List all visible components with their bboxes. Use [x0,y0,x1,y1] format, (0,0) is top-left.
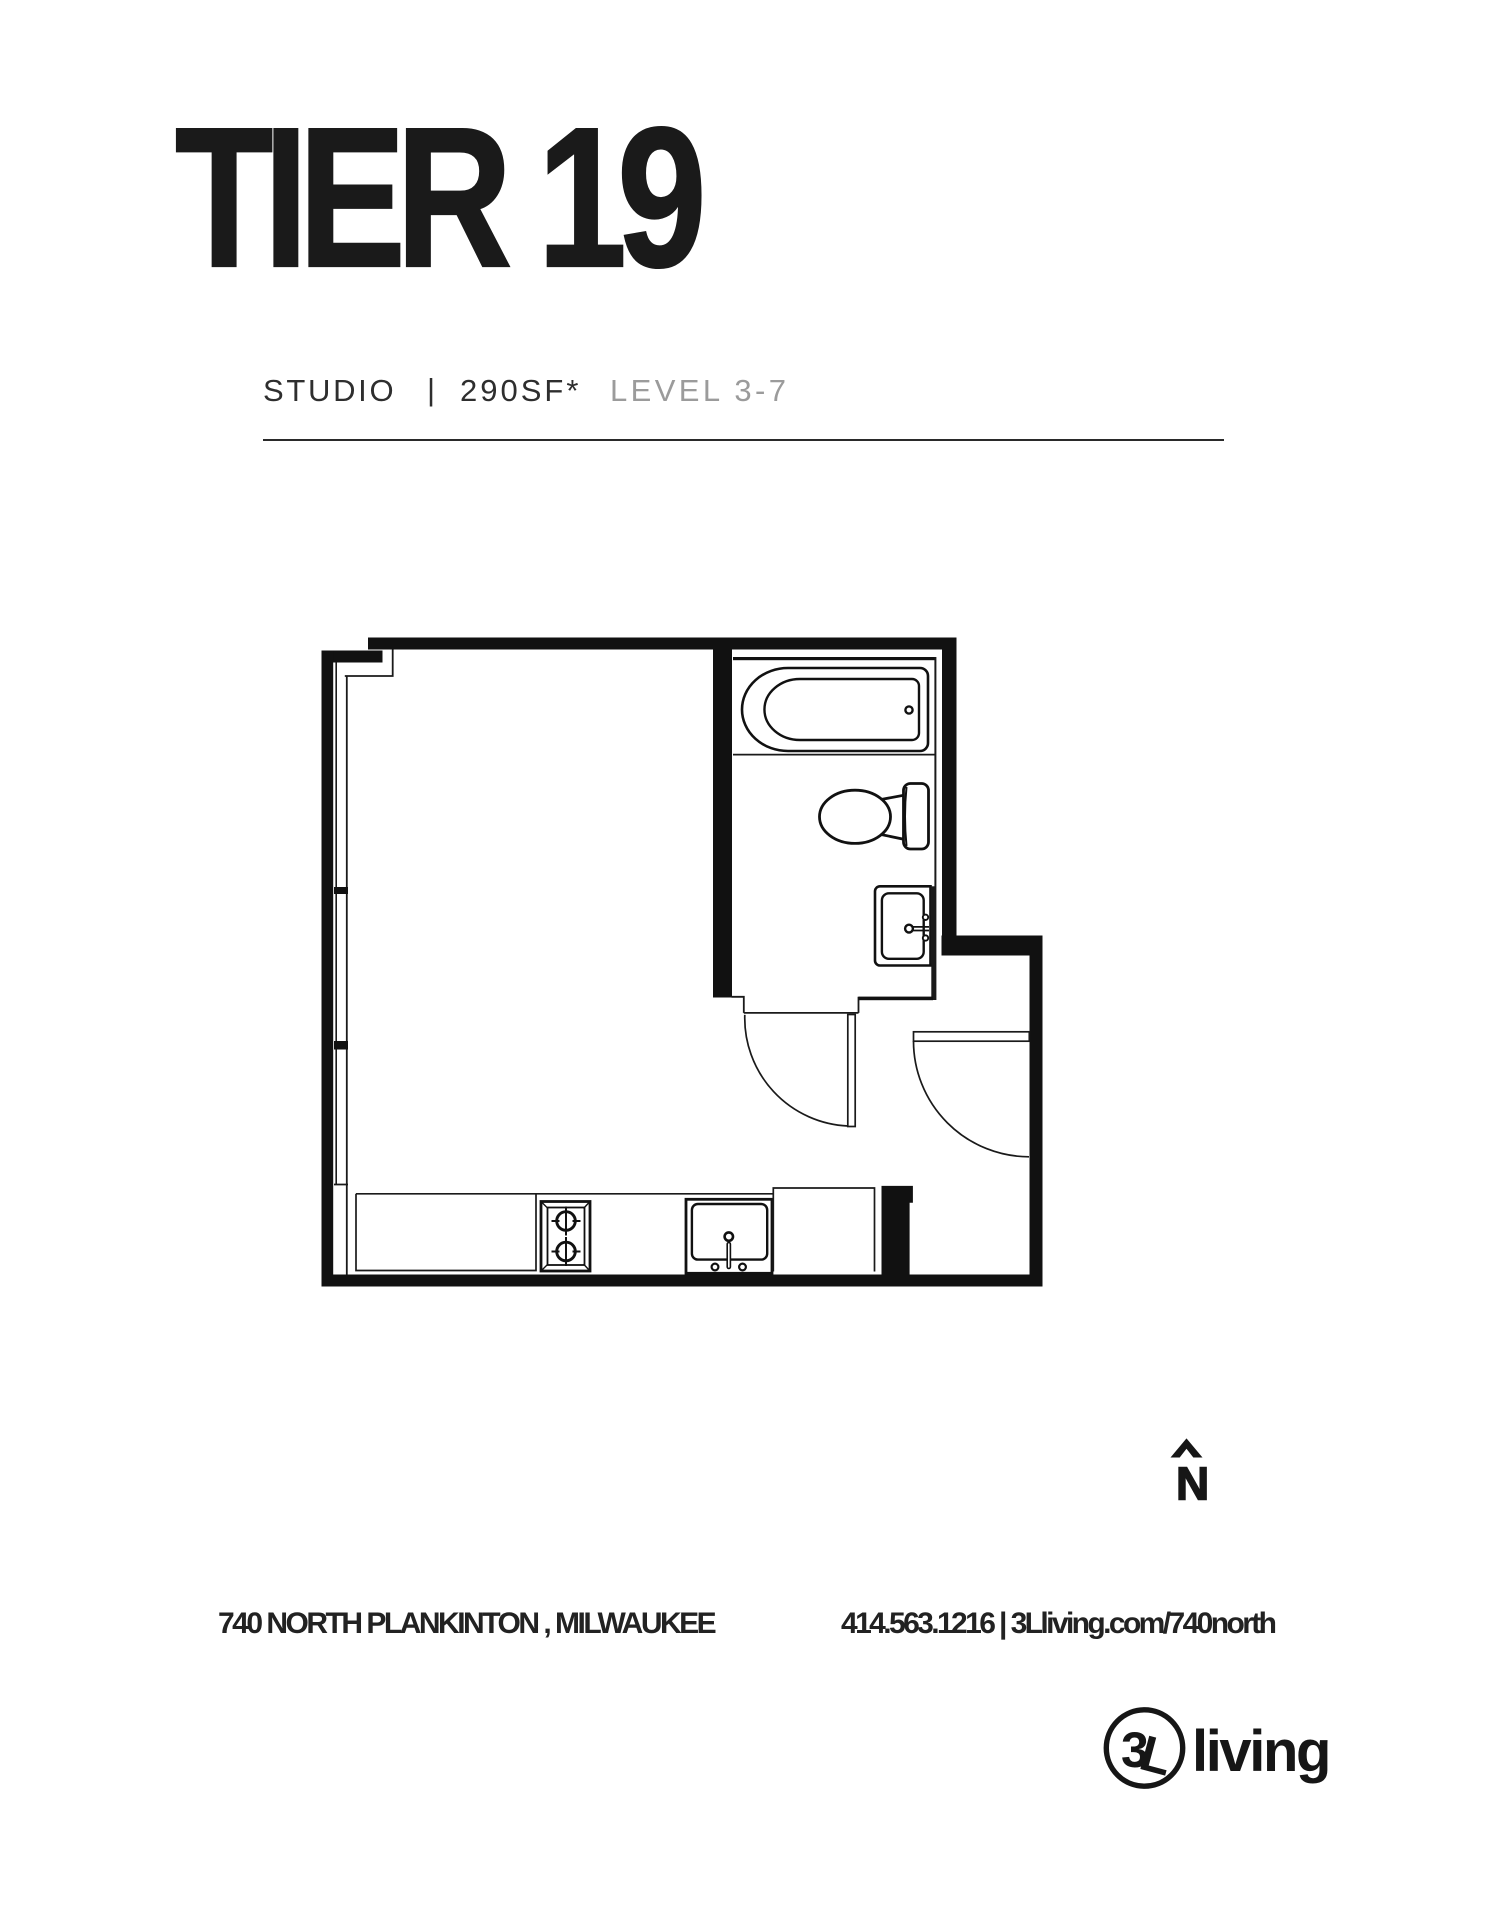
svg-text:living: living [1192,1719,1329,1784]
svg-text:N: N [1176,1457,1209,1509]
